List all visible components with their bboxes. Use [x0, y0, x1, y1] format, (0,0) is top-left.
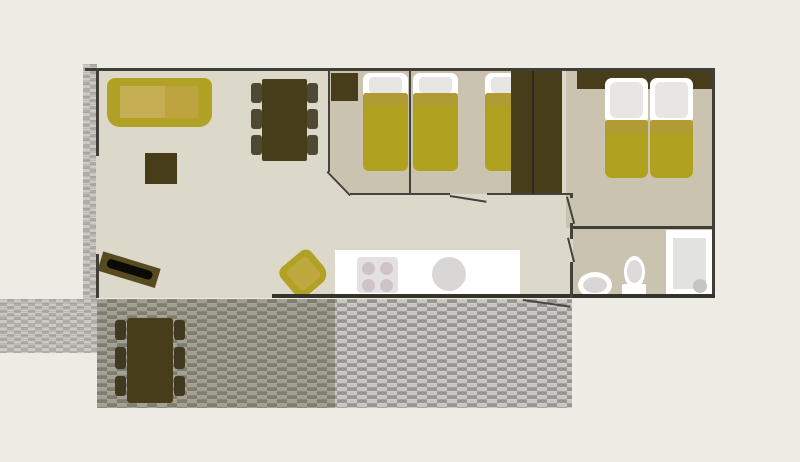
bathroom-sink-basin: [583, 277, 607, 293]
bedroom1-cabinet: [331, 73, 358, 101]
picnic-chair: [174, 320, 185, 340]
kitchen-sink: [432, 257, 466, 291]
wall-bedroom2-master: [532, 71, 534, 194]
wall-left-upper: [96, 68, 99, 156]
sofa-cushion-left: [120, 86, 165, 118]
dining-table: [262, 79, 307, 161]
double-bed-half: [650, 78, 693, 178]
wall-hallway-a: [350, 193, 450, 195]
sofa-cushion-right: [165, 86, 198, 118]
stove-burner: [380, 262, 393, 275]
wall-right: [712, 68, 715, 298]
coffee-table: [145, 153, 177, 184]
bedroom2-wardrobe: [511, 71, 532, 194]
stove-burner: [362, 262, 375, 275]
picnic-chair: [115, 376, 126, 396]
wall-corridor-lower: [570, 262, 573, 298]
bed-cover-fold: [413, 93, 458, 106]
wall-left-lower: [96, 254, 99, 298]
wall-top: [85, 68, 715, 71]
wall-corridor-stub: [570, 193, 573, 198]
wall-bedroom1-left: [328, 71, 330, 172]
master-wardrobe: [534, 71, 562, 194]
dining-chair: [307, 135, 318, 155]
bed-pillow: [610, 82, 643, 118]
dining-chair: [307, 83, 318, 103]
bed-pillow: [369, 77, 402, 93]
picnic-chair: [174, 376, 185, 396]
bed-pillow: [419, 77, 452, 93]
picnic-table: [127, 318, 173, 403]
shower-drain: [693, 279, 707, 293]
single-bed: [413, 73, 458, 171]
stove-burner: [380, 279, 393, 292]
bed-cover-fold: [605, 120, 648, 134]
toilet-seat: [627, 260, 642, 283]
bed-pillow: [655, 82, 688, 118]
picnic-chair: [115, 347, 126, 369]
dining-chair: [251, 135, 262, 155]
wall-bottom: [272, 294, 715, 298]
front-walkway-deck: [0, 299, 97, 353]
wall-master-bathroom: [573, 226, 712, 229]
bed-cover-fold: [363, 93, 408, 106]
dining-chair: [307, 109, 318, 129]
double-bed-half: [605, 78, 648, 178]
floor-plan: [0, 0, 800, 462]
dining-chair: [251, 109, 262, 129]
stove-burner: [362, 279, 375, 292]
single-bed: [363, 73, 408, 171]
bed-cover-fold: [650, 120, 693, 134]
picnic-chair: [115, 320, 126, 340]
picnic-chair: [174, 347, 185, 369]
side-walkway-deck: [83, 64, 97, 300]
wall-bedroom1-2: [409, 71, 411, 194]
dining-chair: [251, 83, 262, 103]
wall-hallway-b: [487, 193, 570, 195]
